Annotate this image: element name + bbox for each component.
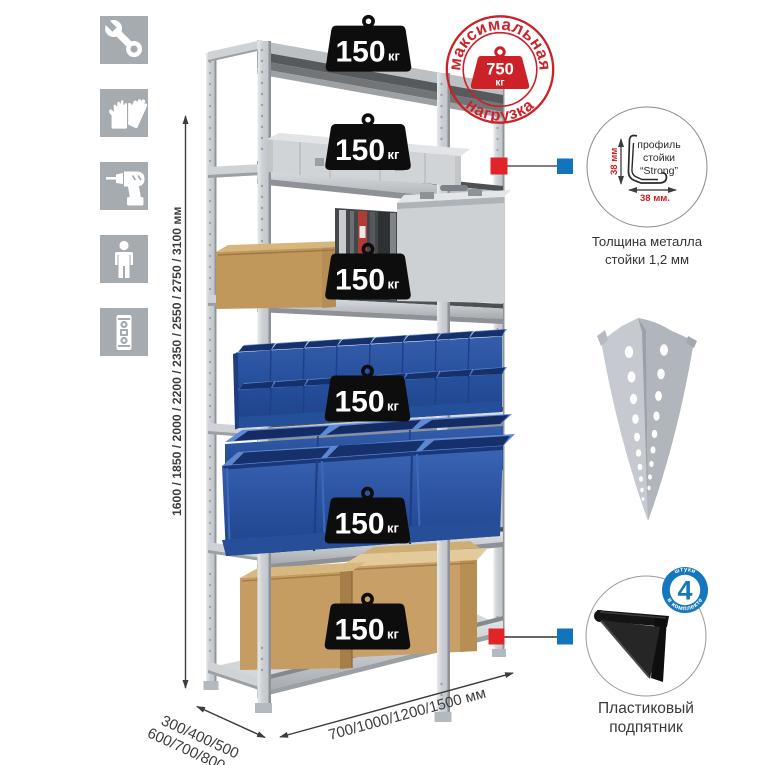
svg-text:кг: кг <box>495 78 504 89</box>
svg-text:38 мм: 38 мм <box>609 148 620 175</box>
svg-text:Толщина металла: Толщина металла <box>592 234 703 249</box>
svg-text:стойки: стойки <box>643 152 675 164</box>
svg-text:стойки 1,2 мм: стойки 1,2 мм <box>605 252 689 267</box>
svg-text:750: 750 <box>486 61 514 79</box>
svg-text:подпятник: подпятник <box>609 719 683 736</box>
svg-text:1600 / 1850 / 2000 / 2200 / 23: 1600 / 1850 / 2000 / 2200 / 2350 / 2550 … <box>170 207 184 516</box>
svg-text:“Strong”: “Strong” <box>640 165 678 177</box>
svg-text:Пластиковый: Пластиковый <box>598 700 694 717</box>
svg-text:4: 4 <box>677 576 692 606</box>
svg-text:38 мм.: 38 мм. <box>640 193 670 204</box>
svg-text:профиль: профиль <box>637 139 681 151</box>
